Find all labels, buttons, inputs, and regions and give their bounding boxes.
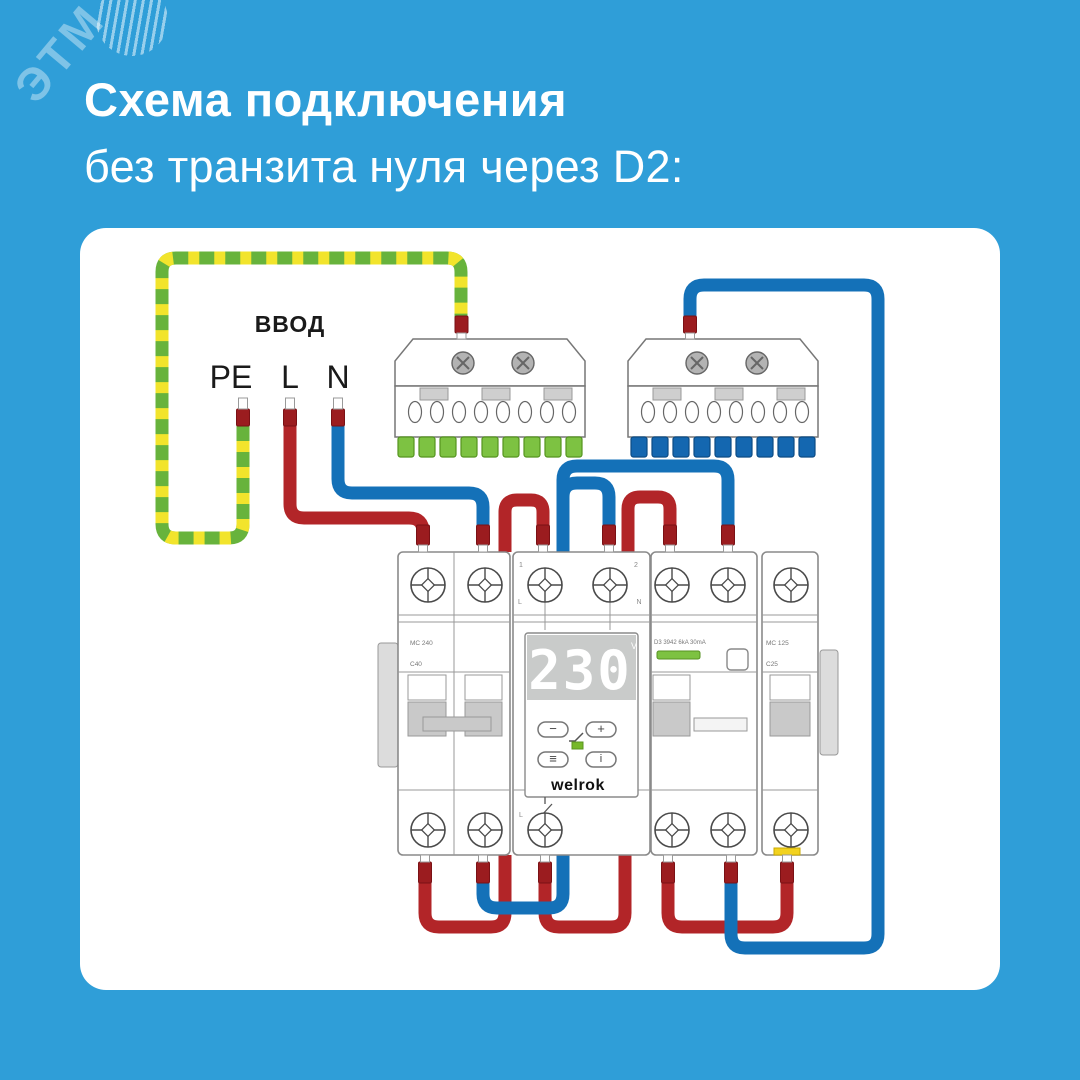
terminal-screw-icon — [468, 813, 502, 847]
wire-l-breaker-output — [425, 855, 505, 927]
n-busbar-clip — [631, 437, 647, 457]
n-busbar-clip — [694, 437, 710, 457]
busbar-band — [420, 388, 448, 400]
relay-display-value: 230 — [528, 639, 632, 702]
load-breaker-handle — [770, 675, 810, 736]
n-busbar-clip — [736, 437, 752, 457]
page-title: Схема подключения — [84, 72, 567, 127]
wire-ferrule — [419, 855, 432, 883]
busbar-hole — [563, 402, 576, 423]
busbar-band — [777, 388, 805, 400]
wire-ferrule — [537, 525, 550, 552]
terminal-screw-icon — [528, 568, 562, 602]
plus-button-label: + — [597, 721, 605, 736]
n-busbar-clips — [631, 437, 815, 457]
pe-busbar-clip — [566, 437, 582, 457]
busbar-hole — [796, 402, 809, 423]
terminal-screw-icon — [528, 813, 562, 847]
busbar-screw-knob-icon — [746, 352, 768, 374]
n-busbar-clip — [715, 437, 731, 457]
busbar-hole — [541, 402, 554, 423]
relay-status-led — [572, 742, 583, 749]
terminal-screw-icon — [711, 568, 745, 602]
n-busbar-clip — [757, 437, 773, 457]
input-terminal-pe-label: PE — [210, 359, 253, 395]
wire-ferrule — [603, 525, 616, 552]
menu-button-label: ≡ — [549, 751, 557, 766]
wire-ferrule — [237, 398, 250, 426]
wire-ferrule — [477, 855, 490, 883]
etm-globe-icon — [96, 0, 168, 56]
busbar-screw-knob-icon — [452, 352, 474, 374]
pe-busbar-clip — [461, 437, 477, 457]
wire-ferrule — [662, 855, 675, 883]
terminal-screw-icon — [655, 568, 689, 602]
terminal-screw-icon — [411, 813, 445, 847]
wire-ferrule — [539, 855, 552, 883]
relay-l-out-mark: L — [519, 812, 523, 819]
wire-ferrule — [684, 316, 697, 339]
input-terminal-l-label: L — [281, 359, 299, 395]
main-breaker-model: MC 240 — [410, 640, 433, 647]
busbar-hole — [708, 402, 721, 423]
busbar-hole — [497, 402, 510, 423]
relay-terminal-1-mark: 1 — [519, 562, 523, 569]
rcd-model: D3 3942 6kA 30mA — [654, 640, 706, 646]
pe-busbar-clip — [419, 437, 435, 457]
busbar-screw-knob-icon — [686, 352, 708, 374]
busbar-hole — [730, 402, 743, 423]
load-breaker-model: MC 125 — [766, 640, 789, 647]
pe-busbar-clip — [545, 437, 561, 457]
rcd-test-button — [727, 649, 748, 670]
n-busbar-clip — [799, 437, 815, 457]
busbar-hole — [519, 402, 532, 423]
terminal-screw-icon — [411, 568, 445, 602]
pe-busbar-clip — [503, 437, 519, 457]
pe-busbar-clip — [482, 437, 498, 457]
rcd-indicator — [657, 651, 700, 659]
info-button-label: i — [600, 753, 602, 765]
page-subtitle: без транзита нуля через D2: — [84, 141, 684, 193]
relay-brand: welrok — [550, 777, 605, 794]
n-busbar — [628, 339, 818, 457]
relay-n-in-mark: N — [636, 599, 641, 606]
relay-l-in-mark: L — [518, 599, 522, 606]
wiring-diagram: ВВОД PE L N MC 240 C40 — [80, 228, 1000, 990]
busbar-hole — [686, 402, 699, 423]
busbar-hole — [664, 402, 677, 423]
relay-terminal-2-mark: 2 — [634, 562, 638, 569]
wire-ferrule — [725, 855, 738, 883]
wire-ferrule — [455, 316, 468, 339]
relay-display-unit: V — [631, 641, 637, 651]
terminal-screw-icon — [593, 568, 627, 602]
busbar-band — [653, 388, 681, 400]
pe-busbar-clip — [440, 437, 456, 457]
terminal-screw-icon — [711, 813, 745, 847]
wire-ferrule — [781, 855, 794, 883]
wire-ferrule — [332, 398, 345, 426]
pe-busbar-clips — [398, 437, 582, 457]
load-breaker-terminal-marker — [774, 848, 800, 855]
busbar-hole — [431, 402, 444, 423]
busbar-hole — [774, 402, 787, 423]
terminal-screw-icon — [468, 568, 502, 602]
main-breaker-rating: C40 — [410, 661, 422, 668]
busbar-hole — [642, 402, 655, 423]
wire-ferrule — [664, 525, 677, 552]
load-breaker-rating: C25 — [766, 661, 778, 668]
wire-ferrule — [417, 525, 430, 552]
pe-busbar-clip — [398, 437, 414, 457]
wire-ferrule — [284, 398, 297, 426]
busbar-band — [715, 388, 743, 400]
wire-ferrule — [477, 525, 490, 552]
busbar-screw-knob-icon — [512, 352, 534, 374]
din-tab-left — [378, 643, 398, 767]
busbar-band — [482, 388, 510, 400]
din-tab-right — [820, 650, 838, 755]
terminal-screw-icon — [655, 813, 689, 847]
terminal-screw-icon — [774, 568, 808, 602]
input-label: ВВОД — [255, 311, 326, 337]
pe-busbar-clip — [524, 437, 540, 457]
busbar-hole — [453, 402, 466, 423]
diagram-panel: ВВОД PE L N MC 240 C40 — [80, 228, 1000, 990]
pe-busbar — [395, 339, 585, 457]
busbar-hole — [475, 402, 488, 423]
n-busbar-clip — [778, 437, 794, 457]
minus-button-label: − — [549, 721, 557, 736]
n-busbar-clip — [673, 437, 689, 457]
wire-ferrule — [722, 525, 735, 552]
terminal-screw-icon — [774, 813, 808, 847]
n-busbar-clip — [652, 437, 668, 457]
busbar-hole — [409, 402, 422, 423]
busbar-hole — [752, 402, 765, 423]
input-terminal-n-label: N — [326, 359, 349, 395]
busbar-band — [544, 388, 572, 400]
